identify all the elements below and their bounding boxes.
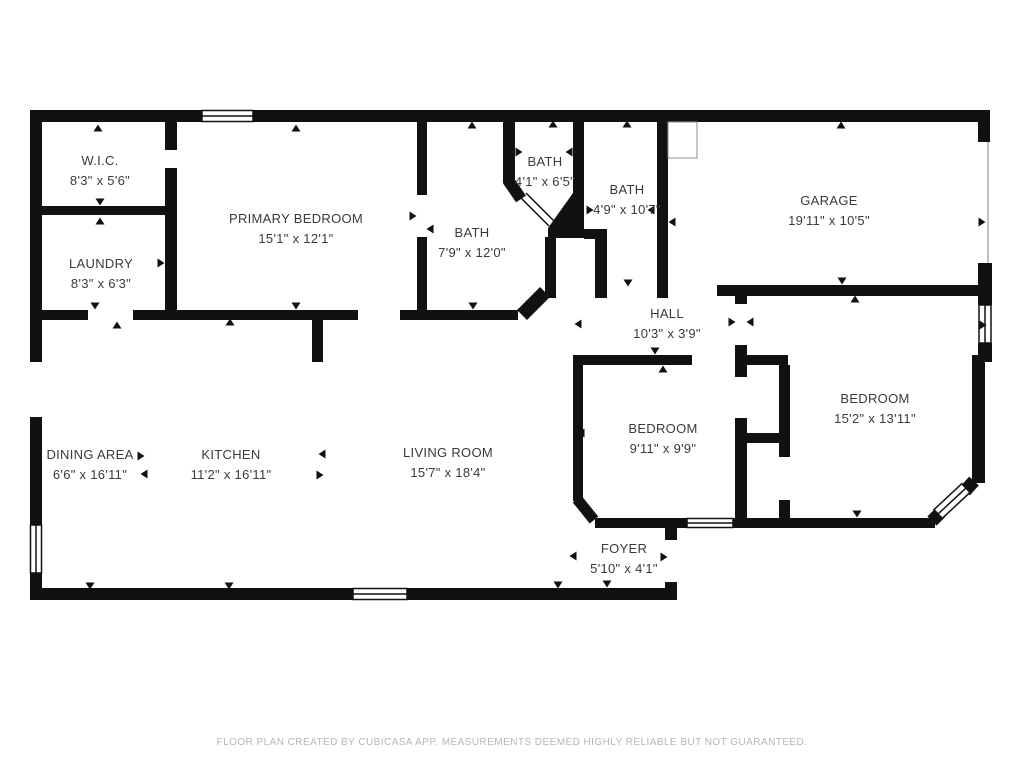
- room-label-bath-mid: BATH4'9" x 10'7": [593, 180, 661, 220]
- room-name: FOYER: [590, 539, 658, 559]
- room-name: KITCHEN: [191, 445, 272, 465]
- room-label-primary-bedroom: PRIMARY BEDROOM15'1" x 12'1": [229, 209, 363, 249]
- room-name: LAUNDRY: [69, 254, 133, 274]
- room-dimensions: 9'11" x 9'9": [628, 439, 697, 459]
- room-dimensions: 15'2" x 13'11": [834, 409, 916, 429]
- room-dimensions: 8'3" x 6'3": [69, 274, 133, 294]
- room-dimensions: 11'2" x 16'11": [191, 465, 272, 485]
- room-name: DINING AREA: [46, 445, 133, 465]
- room-dimensions: 19'11" x 10'5": [788, 211, 870, 231]
- room-name: BATH: [438, 223, 506, 243]
- room-labels-layer: W.I.C.8'3" x 5'6"LAUNDRY8'3" x 6'3"PRIMA…: [0, 0, 1024, 768]
- room-name: W.I.C.: [70, 151, 130, 171]
- room-dimensions: 6'6" x 16'11": [46, 465, 133, 485]
- floor-plan-canvas: W.I.C.8'3" x 5'6"LAUNDRY8'3" x 6'3"PRIMA…: [0, 0, 1024, 768]
- room-label-foyer: FOYER5'10" x 4'1": [590, 539, 658, 579]
- room-dimensions: 10'3" x 3'9": [633, 324, 701, 344]
- room-label-bath-large: BATH7'9" x 12'0": [438, 223, 506, 263]
- room-label-bedroom-left: BEDROOM9'11" x 9'9": [628, 419, 697, 459]
- room-label-bedroom-right: BEDROOM15'2" x 13'11": [834, 389, 916, 429]
- room-name: BATH: [593, 180, 661, 200]
- room-dimensions: 7'9" x 12'0": [438, 243, 506, 263]
- room-dimensions: 4'9" x 10'7": [593, 200, 661, 220]
- room-label-dining-area: DINING AREA6'6" x 16'11": [46, 445, 133, 485]
- room-name: HALL: [633, 304, 701, 324]
- room-dimensions: 4'1" x 6'5": [515, 172, 575, 192]
- room-label-bath-small: BATH4'1" x 6'5": [515, 152, 575, 192]
- room-dimensions: 15'7" x 18'4": [403, 463, 493, 483]
- room-label-living-room: LIVING ROOM15'7" x 18'4": [403, 443, 493, 483]
- room-name: BATH: [515, 152, 575, 172]
- room-label-kitchen: KITCHEN11'2" x 16'11": [191, 445, 272, 485]
- room-dimensions: 8'3" x 5'6": [70, 171, 130, 191]
- room-name: BEDROOM: [628, 419, 697, 439]
- room-name: PRIMARY BEDROOM: [229, 209, 363, 229]
- room-label-garage: GARAGE19'11" x 10'5": [788, 191, 870, 231]
- room-label-wic: W.I.C.8'3" x 5'6": [70, 151, 130, 191]
- room-label-laundry: LAUNDRY8'3" x 6'3": [69, 254, 133, 294]
- room-dimensions: 5'10" x 4'1": [590, 559, 658, 579]
- room-label-hall: HALL10'3" x 3'9": [633, 304, 701, 344]
- room-name: BEDROOM: [834, 389, 916, 409]
- footer-disclaimer: FLOOR PLAN CREATED BY CUBICASA APP. MEAS…: [0, 737, 1024, 748]
- room-name: LIVING ROOM: [403, 443, 493, 463]
- room-dimensions: 15'1" x 12'1": [229, 229, 363, 249]
- room-name: GARAGE: [788, 191, 870, 211]
